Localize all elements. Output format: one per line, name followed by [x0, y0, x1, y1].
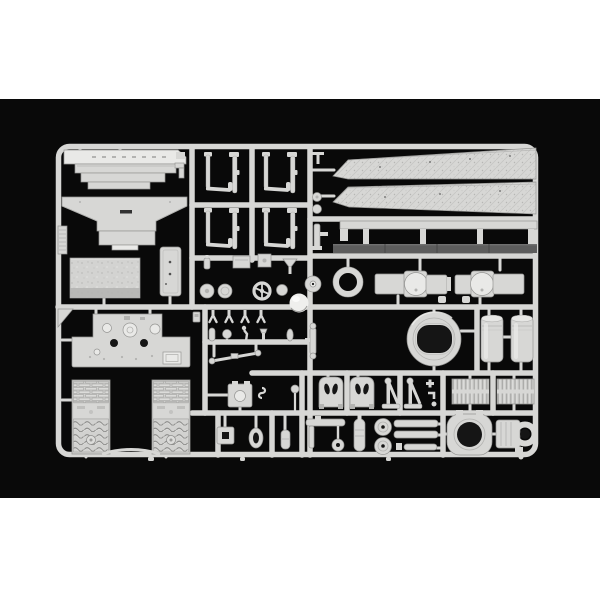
cupola-ring — [407, 312, 461, 366]
dark-track-pad-strip — [333, 244, 537, 253]
photo-page — [0, 0, 600, 600]
octagonal-hatch-ring — [447, 410, 492, 455]
louvered-grille-panel-left — [72, 380, 110, 454]
square-ring-buckle — [217, 427, 234, 444]
ball-dome — [290, 294, 309, 313]
hull-door-panel — [160, 247, 181, 296]
capsule-small — [281, 430, 290, 449]
deck-side-clip — [193, 312, 200, 322]
road-wheel-small — [305, 276, 321, 292]
textured-access-plate — [70, 258, 140, 298]
tow-rod-set — [394, 420, 438, 450]
teardrop-ring — [249, 428, 263, 448]
louvered-grille-panel-right — [152, 380, 190, 454]
ribbed-skirt-strip — [58, 226, 67, 254]
cylinder-capsule — [354, 415, 365, 452]
sprue-photo — [0, 0, 600, 600]
